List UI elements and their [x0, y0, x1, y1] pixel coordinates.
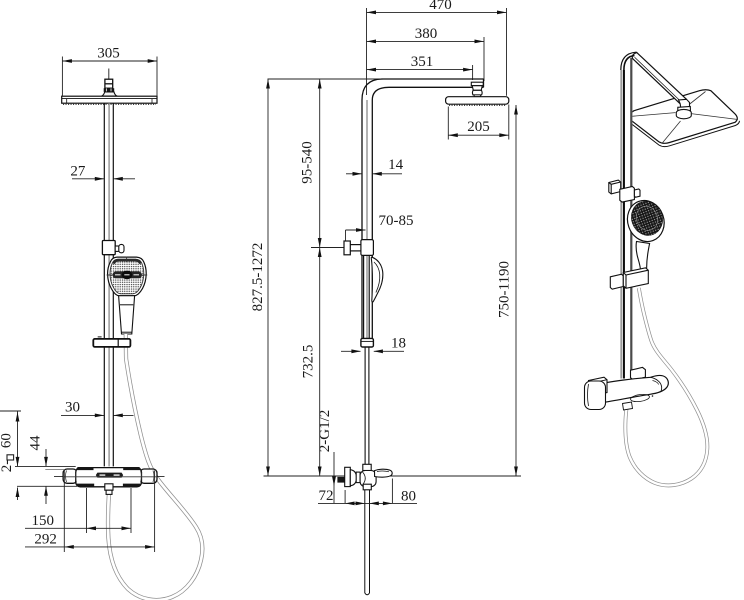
svg-text:27: 27	[70, 164, 86, 180]
svg-text:205: 205	[467, 119, 490, 135]
svg-text:292: 292	[34, 532, 57, 548]
svg-text:70-85: 70-85	[379, 213, 414, 229]
svg-text:2-G1/2: 2-G1/2	[317, 410, 333, 453]
svg-text:60: 60	[0, 433, 15, 448]
svg-text:732.5: 732.5	[301, 345, 317, 379]
svg-text:305: 305	[97, 46, 120, 62]
svg-text:80: 80	[401, 489, 416, 505]
svg-text:351: 351	[411, 54, 434, 70]
svg-text:18: 18	[391, 336, 406, 352]
svg-text:150: 150	[32, 513, 55, 529]
svg-text:750-1190: 750-1190	[497, 261, 513, 318]
svg-text:470: 470	[429, 0, 452, 13]
svg-text:72: 72	[319, 488, 334, 504]
svg-text:827.5-1272: 827.5-1272	[250, 243, 266, 312]
svg-text:14: 14	[388, 157, 404, 173]
svg-text:380: 380	[415, 26, 438, 42]
svg-text:2-: 2-	[0, 460, 15, 473]
svg-text:95-540: 95-540	[300, 141, 316, 184]
svg-text:44: 44	[28, 435, 44, 451]
svg-text:30: 30	[65, 400, 80, 416]
